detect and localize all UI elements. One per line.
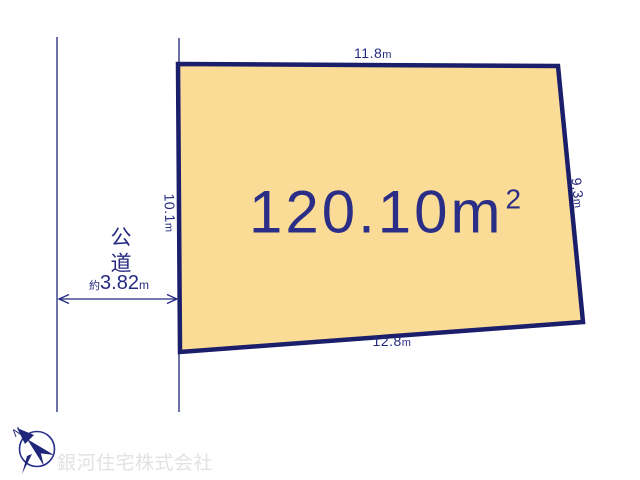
plot-area-value: 120.10 [249, 179, 451, 246]
dimension-right-unit: m [571, 198, 584, 209]
plot-area-superscript: 2 [505, 184, 521, 215]
dimension-bottom: 12.8m [361, 333, 423, 349]
dimension-left-value: 10.1 [161, 193, 178, 223]
road-width-arrow [59, 295, 177, 304]
dimension-bottom-value: 12.8 [373, 333, 402, 349]
dimension-right: 9.3m [568, 177, 587, 209]
dimension-top: 11.8m [340, 45, 406, 61]
dimension-bottom-unit: m [402, 337, 412, 349]
road-width-label: 約3.82m [82, 272, 156, 295]
compass-north-letter: N [11, 425, 24, 439]
land-plot-diagram: 11.8m 9.3m 12.8m 10.1m 120.10m2 公道 約3.82… [0, 0, 640, 480]
plot-area-unit: m [450, 179, 503, 246]
dimension-top-value: 11.8 [354, 45, 382, 61]
compass-icon: N [10, 422, 64, 480]
dimension-left: 10.1m [161, 193, 178, 232]
company-watermark: 銀河住宅株式会社 [57, 448, 213, 475]
road-width-prefix: 約 [89, 280, 100, 292]
dimension-top-unit: m [382, 49, 392, 61]
road-label: 公道 [104, 226, 134, 278]
plot-area-label: 120.10m2 [249, 178, 521, 247]
dimension-right-value: 9.3 [568, 177, 586, 200]
road-width-unit: m [139, 278, 149, 292]
dimension-left-unit: m [162, 223, 174, 233]
road-width-value: 3.82 [100, 272, 139, 294]
